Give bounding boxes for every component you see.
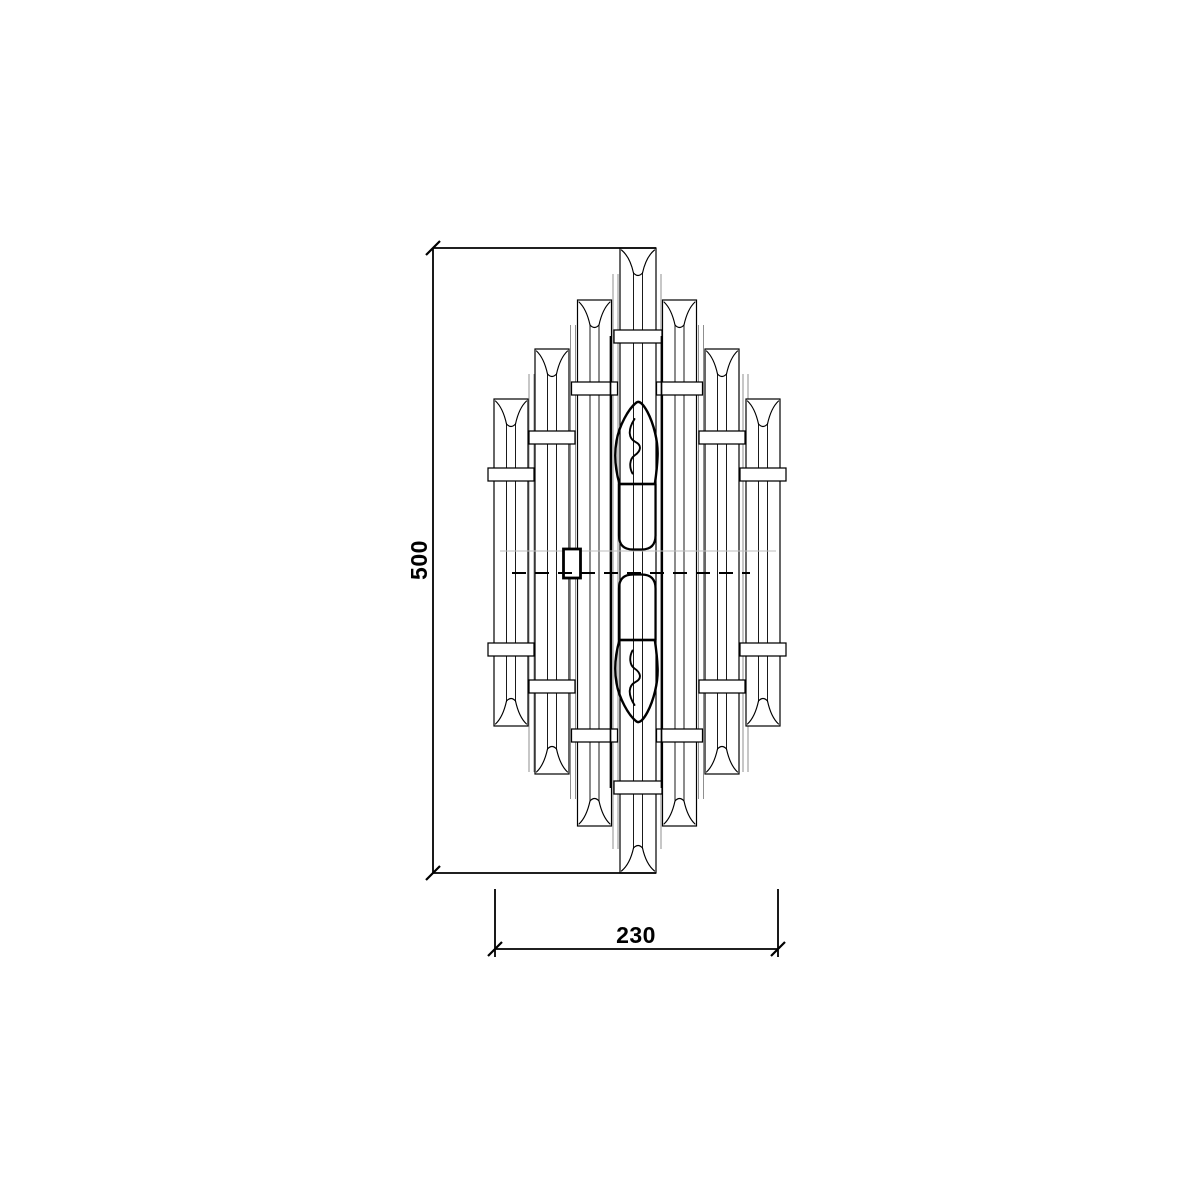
mounting-collar — [740, 643, 786, 656]
mounting-collar — [699, 680, 745, 693]
mounting-collar — [529, 431, 575, 444]
crystal-rod — [705, 349, 739, 774]
mounting-collar — [614, 781, 662, 794]
drawing-page: 500 230 — [0, 0, 1200, 1200]
mounting-collar — [488, 643, 534, 656]
width-dimension-label: 230 — [616, 922, 656, 948]
sconce-technical-drawing: 500 230 — [0, 0, 1200, 1200]
crystal-rod — [746, 399, 780, 726]
mounting-collar — [657, 382, 703, 395]
fixture-drawing — [488, 248, 786, 873]
crystal-rod — [578, 300, 612, 826]
mounting-collar — [740, 468, 786, 481]
mounting-collar — [657, 729, 703, 742]
mounting-collar — [529, 680, 575, 693]
crystal-rod — [663, 300, 697, 826]
mounting-collar — [699, 431, 745, 444]
height-dimension-label: 500 — [406, 540, 432, 580]
mounting-collar — [488, 468, 534, 481]
mounting-collar — [614, 330, 662, 343]
crystal-rod — [494, 399, 528, 726]
